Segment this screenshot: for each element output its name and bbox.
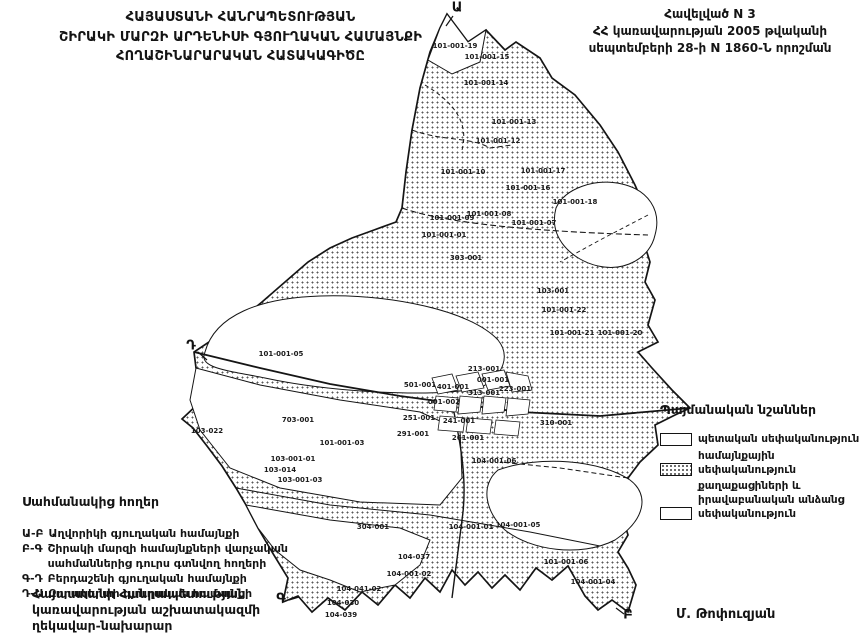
adjacent-lands-title: Սահմանակից հողեր [22,494,332,509]
state-ownership-swatch [660,433,692,446]
legend-item-citizens: քաղաքացիների և իրավաբանական անձանց սեփակ… [660,480,862,521]
signatory-name: Մ. Թոփուզյան [676,607,775,622]
appendix-line-3: սեպտեմբերի 28-ի N 1860-Ն որոշման [560,40,860,57]
title-line-2: ՇԻՐԱԿԻ ՄԱՐԶԻ ԱՐԴԵՆԻՍԻ ԳՅՈՒՂԱԿԱՆ ՀԱՄԱՅՆՔԻ [58,28,423,48]
legend-label: պետական սեփականություն [698,433,859,447]
signature-line-1: Հայաստանի Հանրապետության [32,586,260,602]
segment-label: Բերդաշենի գյուղական համայնքի [48,572,247,586]
appendix-line-1: Հավելված N 3 [560,6,860,23]
legend-title: Պայմանական նշաններ [660,402,862,417]
adjacent-land-row: Գ-Դ Բերդաշենի գյուղական համայնքի [22,572,332,586]
adjacent-land-row: Ա-Բ Աղվորիկի գյուղական համայնքի [22,527,332,541]
segment-label: Շիրակի մարզի համայնքների վարչական սահման… [48,542,310,571]
segment-code: Ա-Բ [22,527,44,541]
community-ownership-swatch [660,463,692,476]
appendix-reference: Հավելված N 3 ՀՀ կառավարության 2005 թվակա… [560,6,860,56]
legend: Պայմանական նշաններ պետական սեփականությու… [660,402,862,524]
segment-label: Աղվորիկի գյուղական համայնքի [49,527,240,541]
legend-item-state: պետական սեփականություն [660,433,862,447]
legend-label: համայնքային սեփականություն [698,450,860,477]
adjacent-land-row: Բ-Գ Շիրակի մարզի համայնքների վարչական սա… [22,542,332,571]
title-line-3: ՀՈՂԱՇԻՆԱՐԱՐԱԿԱՆ ՀԱՏԱԿԱԳԻԾԸ [58,47,423,67]
title-line-1: ՀԱՅԱՍՏԱՆԻ ՀԱՆՐԱՊԵՏՈՒԹՅԱՆ [58,8,423,28]
signature-line-2: կառավարության աշխատակազմի [32,602,260,618]
legend-item-community: համայնքային սեփականություն [660,450,862,477]
scanned-map-page: 101-001-19101-001-15101-001-14101-001-13… [0,0,862,634]
signature-block: Հայաստանի Հանրապետության կառավարության ա… [32,586,260,634]
map-title: ՀԱՅԱՍՏԱՆԻ ՀԱՆՐԱՊԵՏՈՒԹՅԱՆ ՇԻՐԱԿԻ ՄԱՐԶԻ ԱՐ… [58,8,423,67]
signature-line-3: ղեկավար-նախարար [32,618,260,634]
segment-code: Գ-Դ [22,572,43,586]
legend-label: քաղաքացիների և իրավաբանական անձանց սեփակ… [698,480,860,521]
segment-code: Բ-Գ [22,542,43,571]
citizens-ownership-swatch [660,507,692,520]
appendix-line-2: ՀՀ կառավարության 2005 թվականի [560,23,860,40]
